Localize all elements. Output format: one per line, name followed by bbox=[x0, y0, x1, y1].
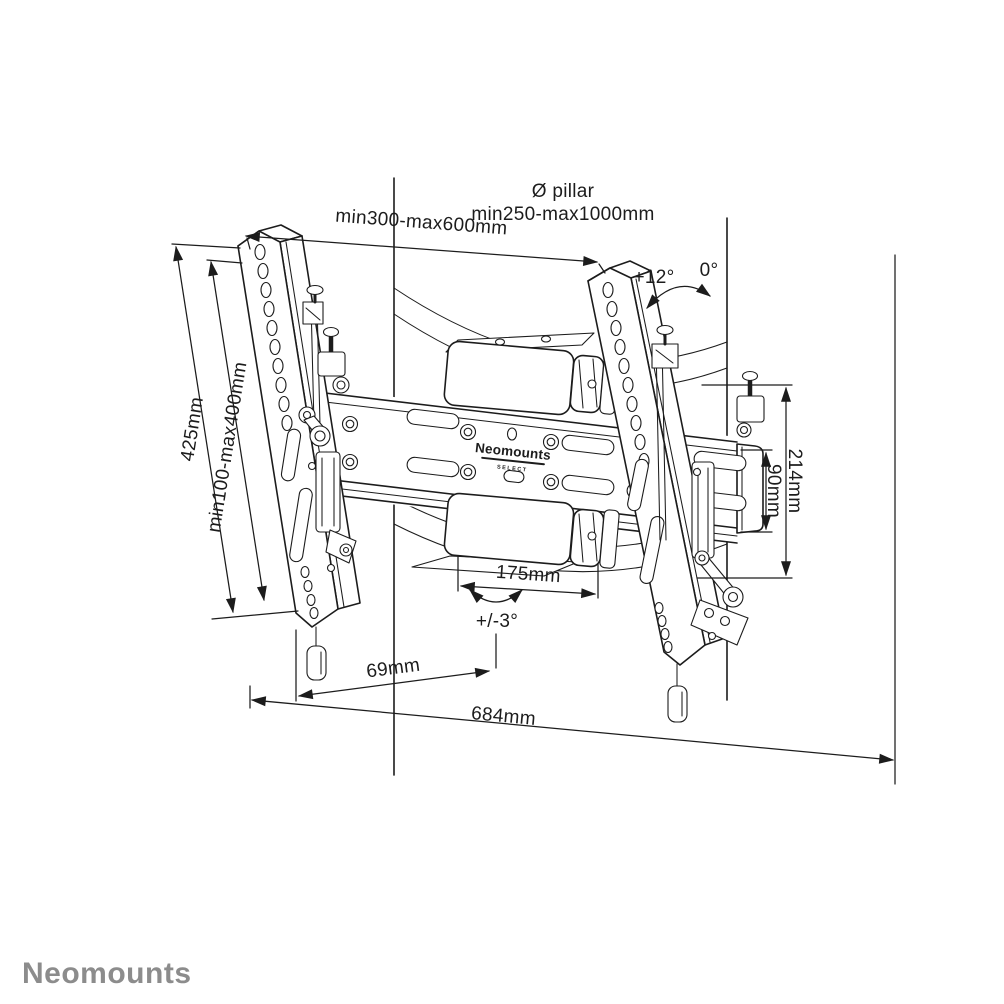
pillar-diameter-title: Ø pillar bbox=[532, 181, 595, 202]
tilt-angle-zero-label: 0° bbox=[700, 260, 719, 281]
upper-strap-box bbox=[443, 333, 619, 415]
swivel-angle-label: +/-3° bbox=[476, 611, 518, 632]
footer-brand-logo: Neomounts bbox=[22, 957, 192, 990]
strap-box-width-label: 175mm bbox=[495, 562, 561, 587]
pillar-mount-line-drawing: Neomounts SELECT bbox=[0, 0, 1004, 1004]
right-pull-handle bbox=[668, 686, 687, 722]
assembly-height-label: 214mm bbox=[784, 449, 805, 514]
left-clamp-screw-top bbox=[307, 286, 323, 295]
left-pull-handle bbox=[307, 646, 326, 680]
right-clamp-screw-front bbox=[743, 372, 758, 381]
rail-height-label: 90mm bbox=[763, 464, 784, 518]
right-clamp-screw-top bbox=[657, 326, 673, 335]
left-clamp-screw-front bbox=[324, 328, 339, 337]
bracket-height-label: 425mm bbox=[177, 395, 208, 462]
technical-drawing-page: Neomounts SELECT bbox=[0, 0, 1004, 1004]
tilt-angle-max-label: +12° bbox=[633, 267, 674, 288]
offset-depth-label: 69mm bbox=[365, 655, 421, 683]
total-width-label: 684mm bbox=[470, 703, 537, 730]
vesa-height-range-label: min100-max400mm bbox=[204, 360, 252, 534]
